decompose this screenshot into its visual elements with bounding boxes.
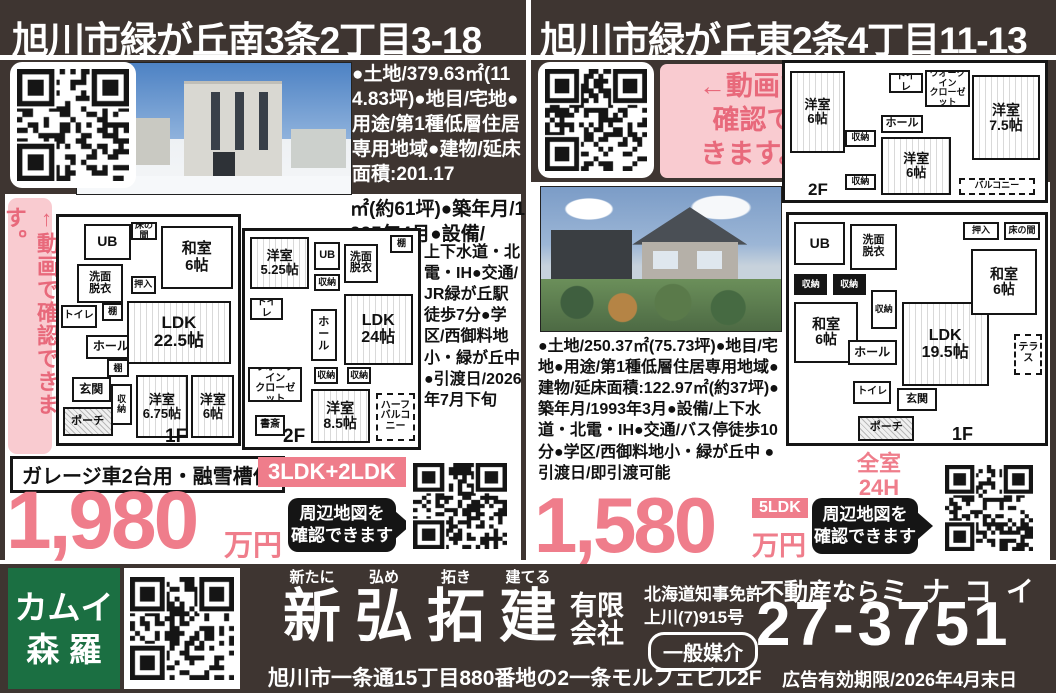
details-right: ●土地/250.37㎡(75.73坪)●地目/宅地●用途/第1種低層住居専用地域…	[538, 336, 788, 488]
room-label: 洋室 5.25帖	[250, 237, 309, 289]
room-label: ウオークイン クローゼット	[248, 367, 302, 402]
property-title-left: 旭川市緑が丘南3条2丁目3-18	[12, 10, 481, 64]
license-line1: 北海道知事免許	[644, 584, 763, 607]
photo-right-window	[653, 251, 678, 269]
company-name-char: 弘	[348, 587, 420, 646]
room-label: テラス	[1014, 334, 1042, 375]
room-label: 洋室 7.5帖	[972, 75, 1040, 160]
qr-code-left-bottom	[406, 456, 514, 556]
room-label: バルコニー	[959, 178, 1034, 194]
company-address: 旭川市一条通15丁目880番地の2一条モルフェビル2F	[268, 662, 762, 692]
qr-code-left-top	[10, 62, 136, 188]
room-label: ホール	[881, 115, 923, 133]
room-label: 棚	[102, 303, 123, 321]
floor-label-right-2f: 2F	[808, 180, 828, 200]
corp-type-line1: 有限	[570, 592, 624, 620]
room-label: 収納	[833, 274, 866, 295]
property-title-right: 旭川市緑が丘東2条4丁目11-13	[540, 10, 1027, 64]
company-name-col: 新たに 新	[276, 570, 348, 646]
room-label: 床の間	[1004, 222, 1040, 240]
room-label: 収納	[871, 290, 897, 329]
photo-left-windows	[196, 92, 271, 150]
license-block: 北海道知事免許 上川(7)915号	[644, 584, 763, 630]
room-label: 棚	[107, 359, 128, 377]
corp-type-line2: 会社	[570, 620, 624, 648]
company-name-col: 弘め 弘	[348, 570, 420, 646]
room-label: 洋室 6帖	[881, 137, 951, 195]
room-label: 洗面 脱衣	[77, 264, 124, 302]
price-unit-left: 万円	[224, 522, 282, 564]
room-label: 収納	[794, 274, 827, 295]
room-label: 玄関	[72, 377, 111, 402]
room-label: 玄関	[897, 388, 938, 411]
room-label: トイレ	[853, 381, 891, 404]
room-label: トイレ	[250, 298, 283, 320]
photo-left-neighbor-house	[291, 129, 346, 168]
license-line2: 上川(7)915号	[644, 607, 763, 630]
room-label: 和室 6帖	[971, 249, 1038, 315]
brand-name-line1: カムイ	[15, 587, 114, 628]
floor-label-right-1f: 1F	[952, 424, 973, 445]
room-label: 書斎	[255, 415, 284, 437]
room-label: LDK 24帖	[344, 294, 413, 365]
room-label: UB	[84, 224, 131, 260]
room-label: 収納	[111, 384, 132, 425]
room-label: 棚	[390, 235, 412, 252]
floorplan-left-1f: UB 洗面 脱衣 トイレ 棚 ホール 玄関 ポーチ 床の間 和室 6帖 押入 L…	[56, 214, 241, 446]
company-name-char: 建	[492, 587, 564, 646]
room-label: 洋室 6帖	[790, 71, 845, 153]
price-left: 1,980	[6, 482, 196, 560]
company-name-block: 新たに 新 弘め 弘 拓き 拓 建てる 建	[276, 570, 564, 646]
map-badge-right: 周辺地図を 確認できます	[812, 498, 918, 554]
corp-type: 有限 会社	[570, 592, 624, 649]
room-label: 押入	[131, 276, 156, 294]
photo-right-cloud	[560, 196, 618, 222]
company-name-char: 拓	[420, 587, 492, 646]
room-label: 洗面 脱衣	[344, 244, 379, 283]
floor-label-left-1f: 1F	[165, 426, 187, 448]
photo-left-entrance	[213, 152, 235, 178]
company-name-col: 拓き 拓	[420, 570, 492, 646]
brand-name-line2: 森 羅	[26, 629, 101, 670]
photo-left-main-house	[184, 81, 283, 178]
company-name-char: 新	[276, 587, 348, 646]
room-label: ポーチ	[858, 416, 914, 441]
room-label: LDK 22.5帖	[127, 301, 231, 364]
photo-right-bushes	[541, 279, 781, 331]
floor-label-left-2f: 2F	[283, 426, 305, 448]
room-label: 収納	[845, 174, 876, 190]
property-photo-right	[540, 186, 782, 332]
floorplan-left-2f: 洋室 5.25帖 UB 収納 洗面 脱衣 棚 トイレ ホール LDK 24帖 ウ…	[242, 228, 421, 450]
photo-right-pergola	[551, 230, 633, 279]
advert-page: 旭川市緑が丘南3条2丁目3-18 旭川市緑が丘東2条4丁目11-13 ●土地/3…	[0, 0, 1056, 693]
room-label: 洋室 6帖	[191, 375, 234, 438]
company-name-col: 建てる 建	[492, 570, 564, 646]
details-side-left: 上下水道・北電・IH●交通/JR緑が丘駅徒歩7分●学区/西御料地小・緑が丘中●引…	[424, 242, 524, 454]
room-label: トイレ	[889, 73, 923, 94]
floorplan-right-1f: UB 洗面 脱衣 収納 収納 和室 6帖 収納 ホール トイレ 玄関 ポーチ L…	[786, 212, 1048, 446]
ad-expiry: 広告有効期限/2026年4月末日	[782, 666, 1017, 692]
room-label: 収納	[347, 367, 371, 384]
room-label: トイレ	[61, 305, 97, 328]
price-unit-right: 万円	[752, 524, 806, 563]
video-banner-left-text: ↑動画で確認できます。	[0, 206, 62, 454]
room-label: 収納	[845, 130, 876, 146]
room-label: 収納	[314, 367, 338, 384]
room-label: ホール	[848, 340, 897, 365]
qr-code-right-top	[538, 62, 654, 178]
room-label: UB	[794, 222, 845, 265]
phone-number: 27-3751	[756, 594, 1012, 656]
photo-right-window2	[697, 251, 722, 269]
room-label: ホール	[311, 309, 337, 361]
map-badge-left: 周辺地図を 確認できます	[288, 498, 396, 552]
price-right: 1,580	[534, 488, 714, 562]
qr-code-right-bottom	[938, 458, 1040, 558]
room-label: 収納	[314, 274, 340, 291]
layout-badge-left: 3LDK+2LDK	[258, 457, 406, 487]
room-label: ポーチ	[63, 407, 113, 436]
details-top-left: ●土地/379.63㎡(114.83坪)●地目/宅地●用途/第1種低層住居専用地…	[352, 62, 524, 192]
room-label: UB	[314, 242, 340, 270]
room-label: 和室 6帖	[161, 226, 233, 289]
room-label: 洋室 8.5帖	[311, 389, 370, 443]
layout-badge-right: 5LDK	[752, 498, 808, 518]
video-banner-left: ↑動画で確認できます。	[8, 198, 52, 454]
room-label: 押入	[963, 222, 999, 240]
brand-box: カムイ 森 羅	[8, 568, 120, 689]
room-label: 洗面 脱衣	[850, 224, 896, 270]
room-label: ハーフ バルコニー	[376, 393, 414, 441]
qr-code-footer	[124, 568, 240, 689]
room-label: ウオークイン クローゼット	[925, 70, 969, 107]
room-label: 床の間	[131, 222, 158, 240]
